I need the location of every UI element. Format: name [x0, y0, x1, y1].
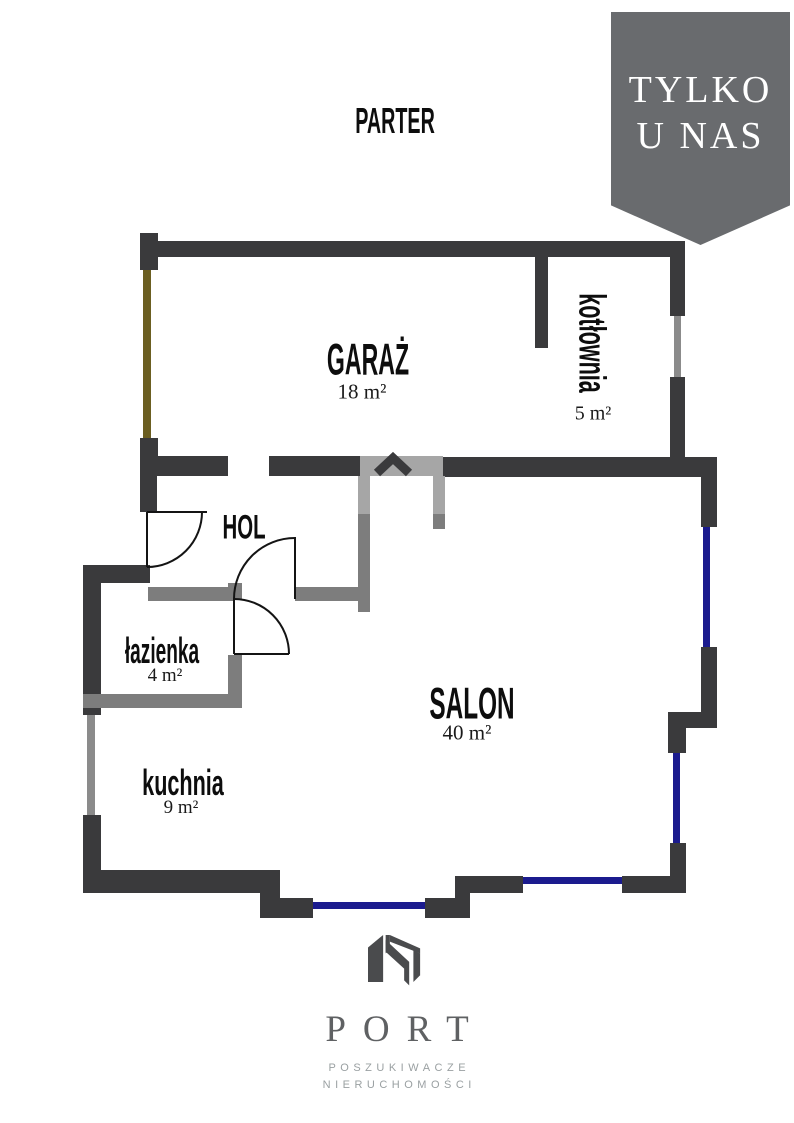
window: [703, 527, 710, 647]
window-gray: [87, 715, 95, 815]
ribbon-line2: U NAS: [611, 112, 790, 160]
wall-segment: [455, 876, 523, 893]
wall-segment: [140, 233, 158, 270]
exclusive-ribbon: TYLKO U NAS: [611, 12, 790, 245]
brand-tagline-2: NIERUCHOMOŚCI: [0, 1077, 794, 1094]
floorplan-page: PARTER GARAŻ 18 m² kotłownia 5 m² HOL ła…: [0, 0, 794, 1123]
brand-name: PORT: [0, 1008, 794, 1051]
wall-segment: [140, 476, 157, 512]
wall-segment-light: [360, 456, 443, 476]
wall-segment-light: [433, 476, 445, 514]
wall-segment-interior: [148, 587, 233, 601]
page-title: PARTER: [326, 103, 463, 142]
room-label-garaz: GARAŻ: [293, 336, 442, 384]
ribbon-line1: TYLKO: [611, 68, 790, 112]
wall-segment-interior: [433, 514, 445, 529]
wall-segment-light: [358, 476, 370, 514]
page-title-text: PARTER: [355, 102, 435, 143]
agency-logo: PORT POSZUKIWACZE NIERUCHOMOŚCI: [0, 930, 794, 1094]
bathroom-door-arc: [234, 599, 289, 654]
wall-segment: [670, 843, 686, 883]
room-area-kotlownia: 5 m²: [575, 403, 612, 426]
wall-segment-interior: [228, 583, 242, 600]
wall-segment: [269, 456, 360, 476]
window: [673, 753, 680, 843]
entrance-door-arc: [147, 512, 207, 567]
wall-segment: [260, 898, 313, 918]
brand-tagline-1: POSZUKIWACZE: [0, 1060, 794, 1077]
room-area-garaz: 18 m²: [338, 380, 387, 405]
garage-door: [143, 270, 151, 438]
window-gray: [674, 316, 681, 377]
wall-segment-interior: [295, 587, 370, 601]
port-logo-icon: [368, 930, 426, 992]
room-area-salon: 40 m²: [443, 721, 492, 746]
room-label-kotlownia: kotłownia: [509, 322, 675, 364]
room-area-kuchnia: 9 m²: [164, 797, 199, 819]
wall-segment: [83, 870, 280, 893]
wall-segment: [701, 460, 717, 527]
wall-segment: [140, 456, 228, 476]
wall-segment-interior: [83, 694, 242, 708]
wall-segment: [670, 377, 685, 477]
window: [313, 902, 425, 909]
room-label-hol: HOL: [208, 509, 280, 548]
room-area-lazienka: 4 m²: [148, 665, 183, 687]
wall-segment: [140, 241, 685, 257]
wall-segment: [670, 242, 685, 316]
wall-segment: [668, 712, 686, 753]
window: [523, 877, 622, 884]
